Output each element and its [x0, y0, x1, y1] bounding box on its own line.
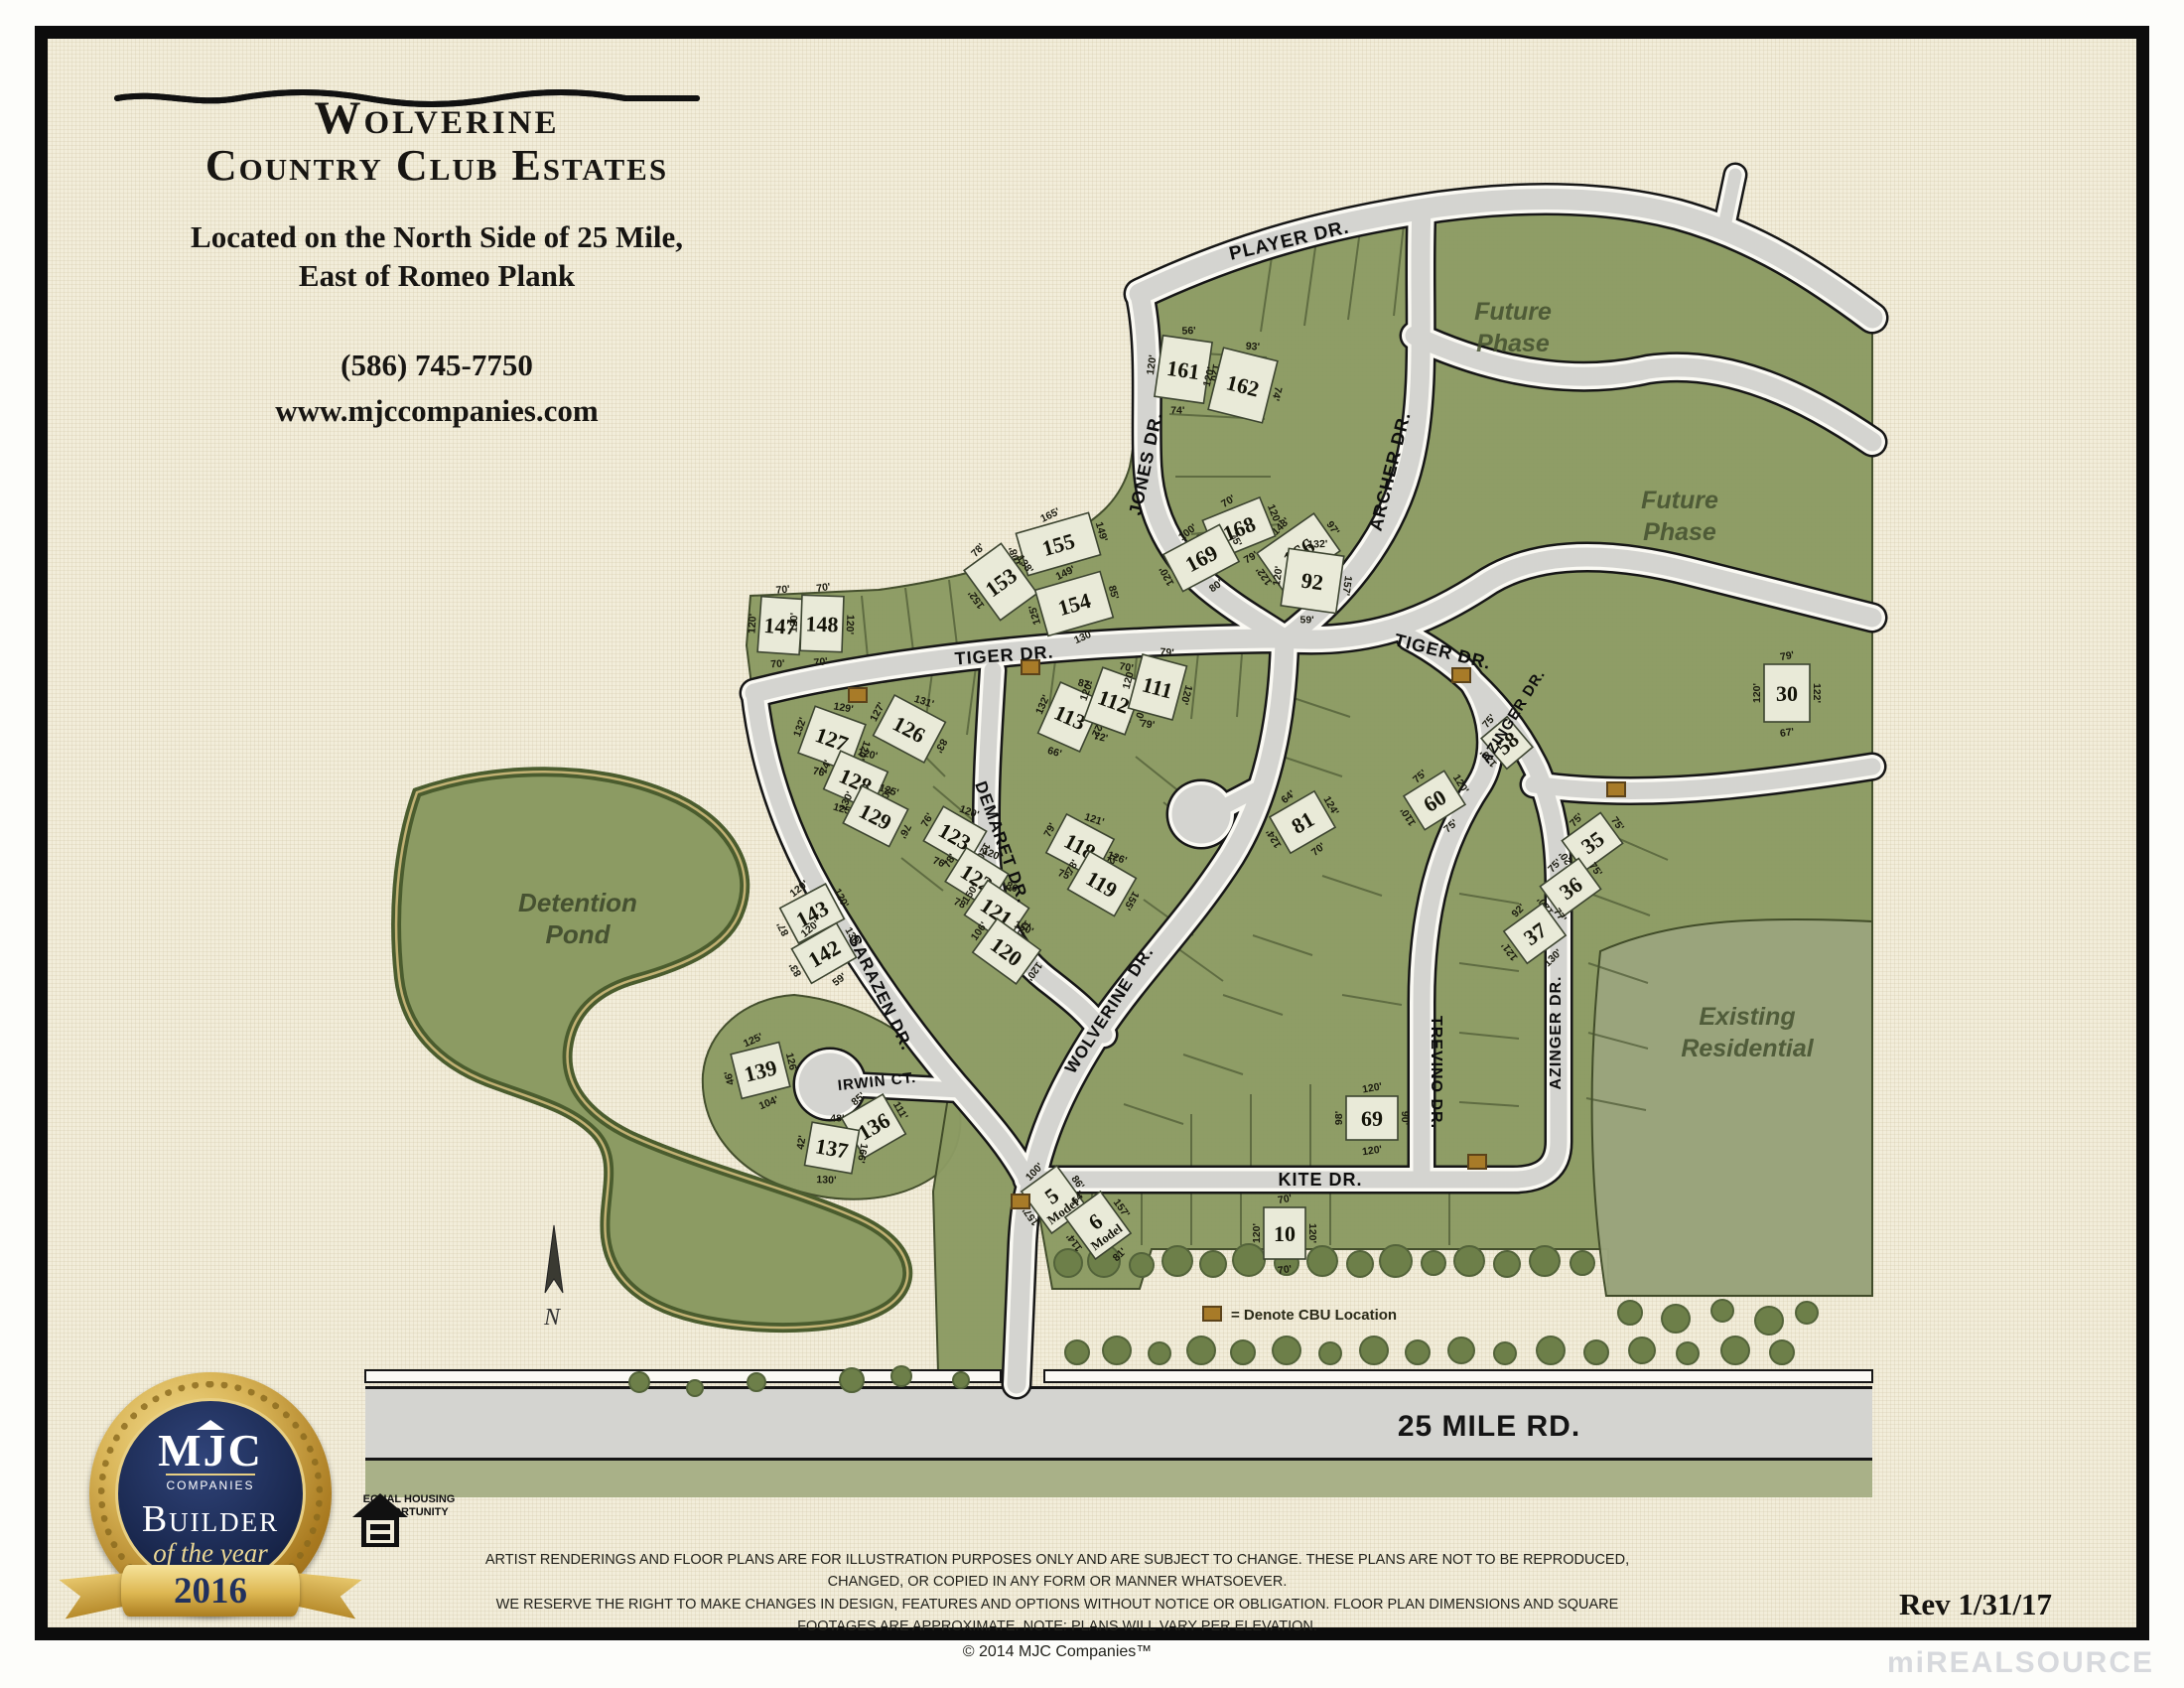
- lot-dimension: 70': [775, 583, 790, 596]
- tree: [1494, 1342, 1516, 1364]
- community-title-line2: Country Club Estates: [109, 143, 764, 189]
- tree: [1618, 1301, 1642, 1325]
- tree: [1065, 1340, 1089, 1364]
- street-label-25-mile-rd: 25 MILE RD.: [1398, 1410, 1580, 1443]
- north-label: N: [543, 1305, 562, 1331]
- lot-dimension: 132': [1307, 538, 1327, 551]
- location-line2: East of Romeo Plank: [109, 257, 764, 296]
- legend-text: = Denote CBU Location: [1231, 1307, 1397, 1324]
- lot-number: 92: [1299, 568, 1324, 596]
- lot-dimension: 70': [816, 581, 832, 595]
- tree: [1187, 1336, 1215, 1364]
- tree: [1149, 1342, 1170, 1364]
- equal-housing-house-icon: [349, 1491, 411, 1549]
- badge-monogram: MJC: [158, 1430, 263, 1471]
- disclaimer-line2: WE RESERVE THE RIGHT TO MAKE CHANGES IN …: [457, 1594, 1658, 1616]
- street-label-trevino-dr-: TREVINO DR.: [1428, 1016, 1444, 1129]
- tree: [1662, 1305, 1690, 1333]
- tree: [1711, 1300, 1733, 1322]
- lot-number: 148: [805, 611, 839, 636]
- badge-year: 2016: [121, 1565, 300, 1617]
- tree: [1231, 1340, 1255, 1364]
- lot-dimension: 48': [830, 1112, 844, 1124]
- tree: [1233, 1244, 1265, 1276]
- cbu-legend: = Denote CBU Location: [1203, 1307, 1397, 1324]
- lot-dimension: 79': [1779, 649, 1795, 663]
- lot-number: 161: [1165, 355, 1201, 384]
- cbu-marker: [1452, 668, 1470, 682]
- website-url: www.mjccompanies.com: [109, 393, 764, 429]
- cbu-marker: [1012, 1195, 1029, 1208]
- tree: [1319, 1342, 1341, 1364]
- tree: [953, 1372, 969, 1388]
- lot-dimension: 56': [1181, 325, 1196, 337]
- tree: [1380, 1245, 1412, 1277]
- builder-of-the-year-badge: MJC COMPANIES Builder of the year 2016: [62, 1368, 359, 1646]
- lot-dimension: 120': [788, 613, 801, 633]
- tree: [1770, 1340, 1794, 1364]
- lot-dimension: 59': [1299, 615, 1313, 627]
- street-label-kite-dr-: KITE DR.: [1278, 1170, 1362, 1190]
- tree: [1162, 1246, 1192, 1276]
- street-label-azinger-dr-: AZINGER DR.: [1548, 976, 1565, 1090]
- tree: [840, 1368, 864, 1392]
- lot-dimension: 70': [770, 657, 785, 670]
- lot-dimension: 74': [1170, 405, 1184, 417]
- tree: [1347, 1251, 1373, 1277]
- disclaimer-line3: FOOTAGES ARE APPROXIMATE. NOTE: PLANS WI…: [457, 1616, 1658, 1637]
- lot-dimension: 70': [813, 655, 828, 668]
- tree: [891, 1366, 911, 1386]
- road-25-mile-surface: [365, 1388, 1872, 1460]
- title-divider-bottom: [109, 89, 705, 107]
- lot-dimension: 79': [1140, 718, 1156, 732]
- lot-dimension: 120': [1251, 1223, 1263, 1243]
- location-text: Located on the North Side of 25 Mile, Ea…: [109, 218, 764, 296]
- sidewalk: [1044, 1370, 1872, 1382]
- lot-dimension: 67': [1779, 726, 1795, 740]
- location-line1: Located on the North Side of 25 Mile,: [109, 218, 764, 257]
- equal-housing-logo: EQUAL HOUSING OPPORTUNITY: [349, 1491, 469, 1519]
- tree: [1494, 1251, 1520, 1277]
- north-arrow-icon: [545, 1225, 563, 1293]
- lot-dimension: 90': [1399, 1111, 1411, 1125]
- tree: [1360, 1336, 1388, 1364]
- tree: [1406, 1340, 1430, 1364]
- tree: [1721, 1336, 1749, 1364]
- lot-dimension: 120': [1306, 1223, 1318, 1243]
- lot-dimension: 70': [1277, 1263, 1293, 1277]
- phone-number: (586) 745-7750: [109, 348, 764, 383]
- road-verge: [365, 1460, 1872, 1497]
- header-block: Wolverine Country Club Estates Located o…: [109, 85, 764, 429]
- watermark-text: miREALSOURCE: [1420, 1646, 2154, 1680]
- tree: [1530, 1246, 1560, 1276]
- north-arrow: N: [543, 1225, 563, 1331]
- legend-cbu-swatch: [1203, 1307, 1221, 1321]
- tree: [1755, 1307, 1783, 1335]
- tree: [1570, 1251, 1594, 1275]
- tree: [1537, 1336, 1565, 1364]
- lot-number: 30: [1776, 681, 1798, 706]
- lot-dimension: 70': [1277, 1193, 1293, 1206]
- tree: [1422, 1251, 1445, 1275]
- lot-number: 10: [1274, 1221, 1296, 1246]
- lot-dimension: 79': [1160, 646, 1174, 659]
- cbu-marker: [849, 688, 867, 702]
- tree: [687, 1380, 703, 1396]
- badge-ribbon: 2016: [62, 1559, 359, 1624]
- badge-companies: COMPANIES: [166, 1474, 254, 1492]
- tree: [1448, 1337, 1474, 1363]
- lot-dimension: 59': [830, 971, 849, 989]
- tree: [1629, 1337, 1655, 1363]
- revision-date: Rev 1/31/17: [1817, 1587, 2134, 1622]
- tree: [1103, 1336, 1131, 1364]
- road-25-mile: [365, 1370, 1872, 1497]
- tree: [1677, 1342, 1699, 1364]
- cbu-marker: [1607, 782, 1625, 796]
- tree: [1584, 1340, 1608, 1364]
- lot-dimension: 120': [1751, 683, 1763, 703]
- tree: [1200, 1251, 1226, 1277]
- disclaimer-line1: ARTIST RENDERINGS AND FLOOR PLANS ARE FO…: [457, 1549, 1658, 1594]
- tree: [629, 1372, 649, 1392]
- tree: [1054, 1249, 1082, 1277]
- lot-dimension: 42': [794, 1135, 808, 1151]
- tree: [1307, 1246, 1337, 1276]
- cbu-marker: [1468, 1155, 1486, 1169]
- badge-builder: Builder: [142, 1500, 279, 1538]
- lot-dimension: 130': [816, 1174, 836, 1187]
- lot-number: 69: [1361, 1106, 1383, 1131]
- tree: [1454, 1246, 1484, 1276]
- tree: [748, 1373, 765, 1391]
- tree: [1796, 1302, 1818, 1324]
- lot-dimension: 120': [844, 615, 857, 634]
- lot-dimension: 120': [746, 614, 758, 634]
- lot-dimension: 98': [1333, 1111, 1345, 1125]
- lot-dimension: 93': [1245, 341, 1260, 353]
- lot-dimension: 122': [1811, 683, 1823, 703]
- tree: [1273, 1336, 1300, 1364]
- tree: [1130, 1253, 1154, 1277]
